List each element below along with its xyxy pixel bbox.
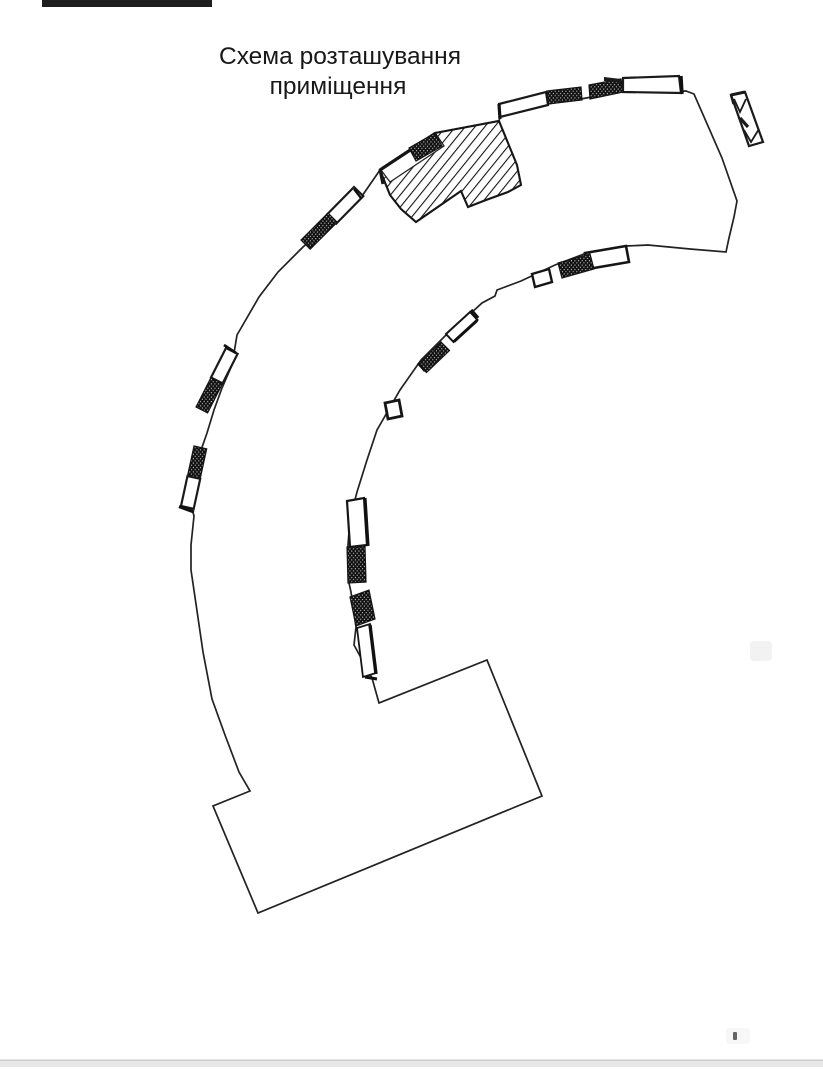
svg-text:приміщення: приміщення [270,73,407,100]
svg-text:Схема розташування: Схема розташування [219,43,461,70]
